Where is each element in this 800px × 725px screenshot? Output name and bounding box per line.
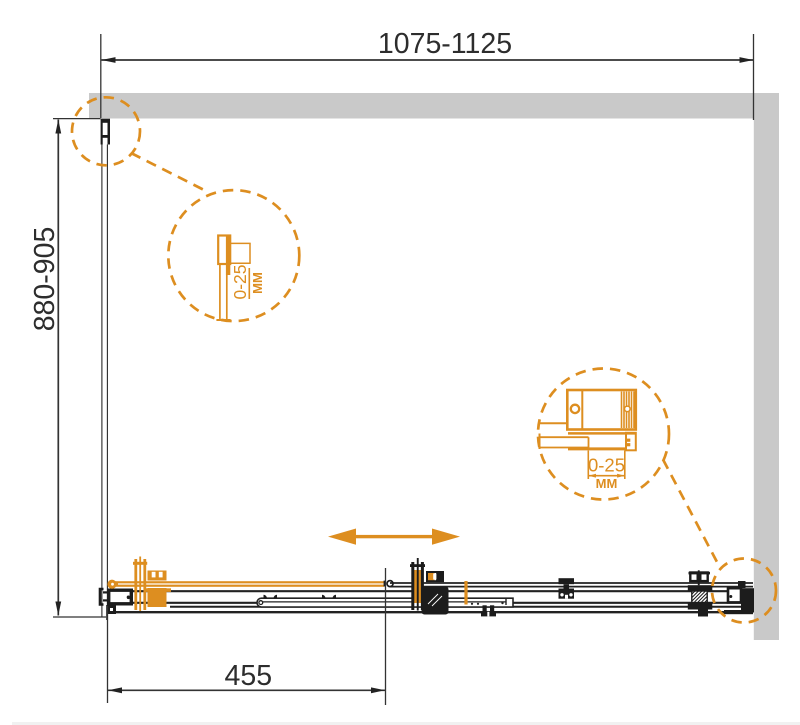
svg-text:0-25: 0-25 bbox=[588, 455, 625, 476]
svg-text:455: 455 bbox=[225, 660, 273, 692]
svg-text:0-25: 0-25 bbox=[230, 264, 250, 299]
svg-text:ММ: ММ bbox=[250, 272, 265, 294]
svg-text:880-905: 880-905 bbox=[29, 227, 61, 332]
svg-text:1075-1125: 1075-1125 bbox=[378, 28, 512, 60]
svg-text:ММ: ММ bbox=[596, 476, 618, 491]
